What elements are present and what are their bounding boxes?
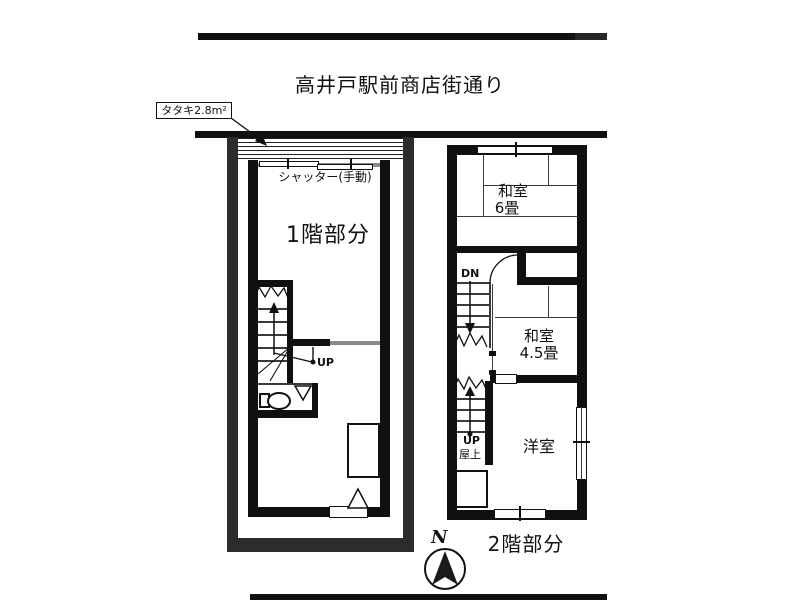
tataki-leader-arrowhead [255,132,267,146]
floor1-stair-break-line [254,286,288,299]
up-arrowhead [465,386,475,396]
floorplan-page: 高井戸駅前商店街通り タタキ2.8m² シャッター(手動) 1階部分 UP [0,0,800,600]
floor1-winder-line [252,347,290,379]
dn-stair-break-line [453,333,487,348]
compass-north-needle [432,551,458,585]
floor1-entry-door-mark [348,489,368,508]
floor1-path-start-dot [311,360,316,365]
tataki-leader-line [231,118,261,140]
vector-overlay [0,0,800,600]
floor1-up-arrowhead [269,302,279,313]
floor1-path-line [274,353,312,362]
toilet-corner-basin [295,386,311,400]
floor1-winder-line [270,347,290,381]
up-path-start-dot [468,432,473,437]
floor2-door-swing-arc [490,255,518,283]
